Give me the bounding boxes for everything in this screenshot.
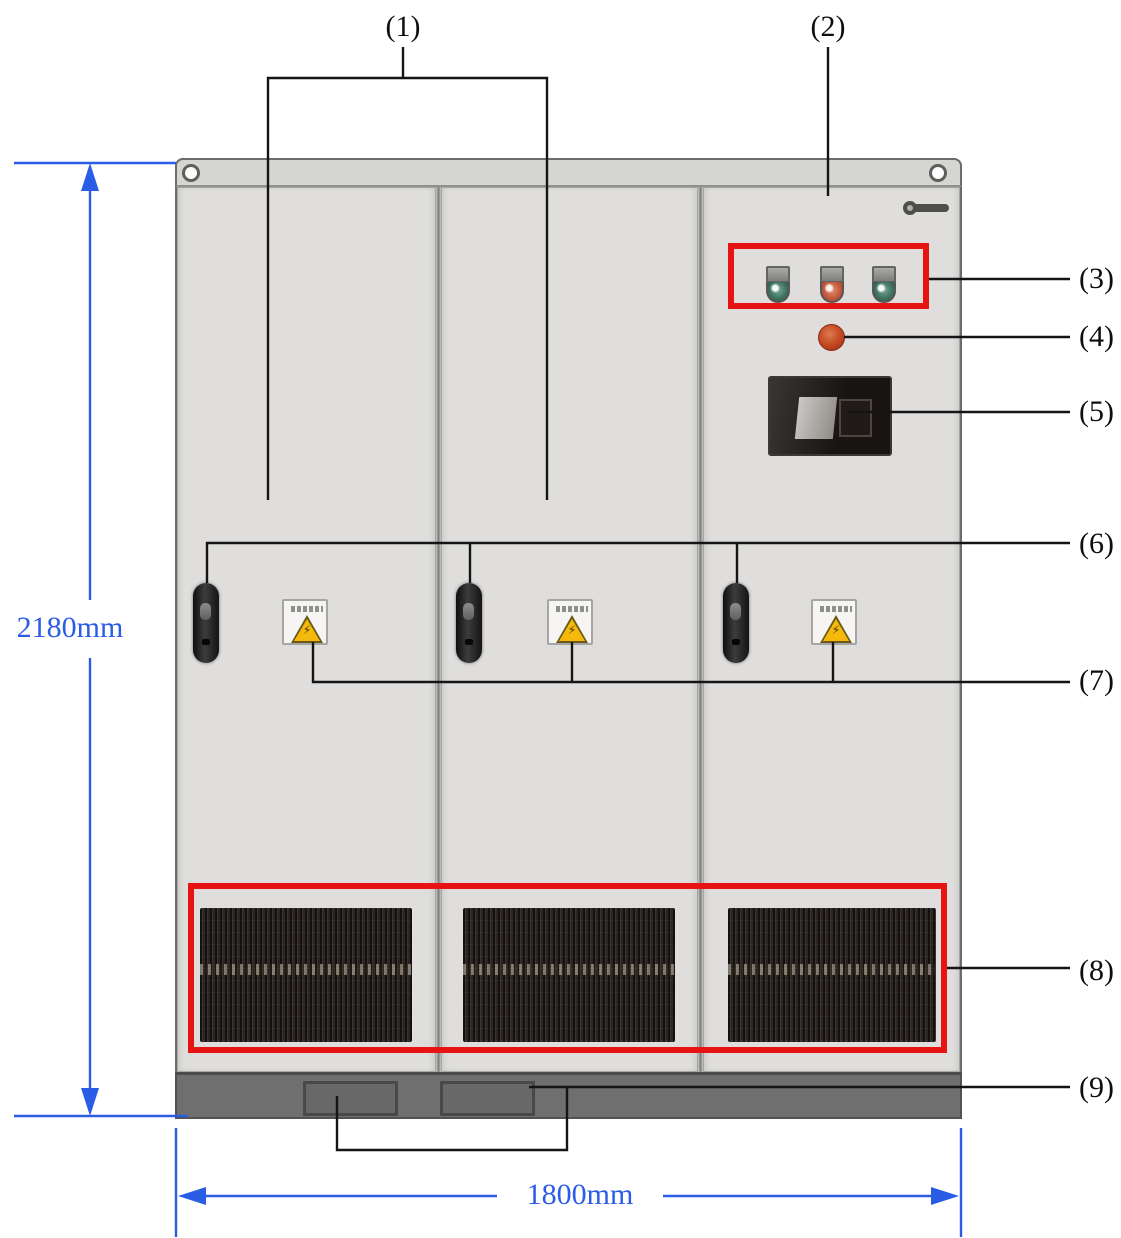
warning-label-middle: ⚡ [547, 599, 593, 645]
handle-screw [732, 639, 740, 645]
dimension-width-label: 1800mm [495, 1179, 665, 1211]
arrow-down-icon [81, 1088, 99, 1116]
door-lock-ring-icon [903, 201, 917, 215]
arrow-up-icon [81, 163, 99, 191]
cabinet-top-panel [175, 158, 962, 187]
warning-label-text [556, 606, 588, 612]
callout-label-5: (5) [1072, 396, 1121, 428]
base-slot-left [303, 1081, 398, 1116]
callout-label-6: (6) [1072, 528, 1121, 560]
handle-screw [465, 639, 473, 645]
warning-label-right: ⚡ [811, 599, 857, 645]
vent-grilles-highlight-box [188, 883, 947, 1053]
warning-label-text [291, 606, 323, 612]
hmi-display-glare [795, 397, 837, 439]
lifting-hole-right-icon [929, 164, 947, 182]
callout-label-4: (4) [1072, 321, 1121, 353]
callout-label-2: (2) [799, 11, 857, 43]
emergency-stop-button [818, 324, 845, 351]
warning-label-text [820, 606, 852, 612]
lightning-bolt-icon: ⚡ [813, 623, 859, 637]
warning-label-left: ⚡ [282, 599, 328, 645]
lifting-hole-left-icon [182, 164, 200, 182]
door-lock-key-icon [913, 204, 949, 212]
lightning-bolt-icon: ⚡ [284, 623, 330, 637]
lightning-bolt-icon: ⚡ [549, 623, 595, 637]
base-slot-right [440, 1081, 535, 1116]
callout-label-3: (3) [1072, 263, 1121, 295]
arrow-right-icon [931, 1187, 959, 1205]
callout-label-9: (9) [1072, 1072, 1121, 1104]
callout-label-7: (7) [1072, 665, 1121, 697]
cabinet-base [175, 1072, 962, 1119]
equipment-front-view-diagram: ⚡ ⚡ ⚡ [0, 0, 1121, 1238]
handle-screw [202, 639, 210, 645]
indicator-lights-highlight-box [728, 243, 929, 309]
hmi-display [768, 376, 892, 456]
door-handle-middle [456, 583, 482, 663]
door-handle-left [193, 583, 219, 663]
handle-slot [463, 603, 474, 620]
callout-label-8: (8) [1072, 955, 1121, 987]
handle-slot [730, 603, 741, 620]
dimension-height-label: 2180mm [2, 612, 138, 644]
arrow-left-icon [178, 1187, 206, 1205]
door-handle-right [723, 583, 749, 663]
handle-slot [200, 603, 211, 620]
callout-label-1: (1) [374, 11, 432, 43]
hmi-display-screen [839, 399, 872, 437]
